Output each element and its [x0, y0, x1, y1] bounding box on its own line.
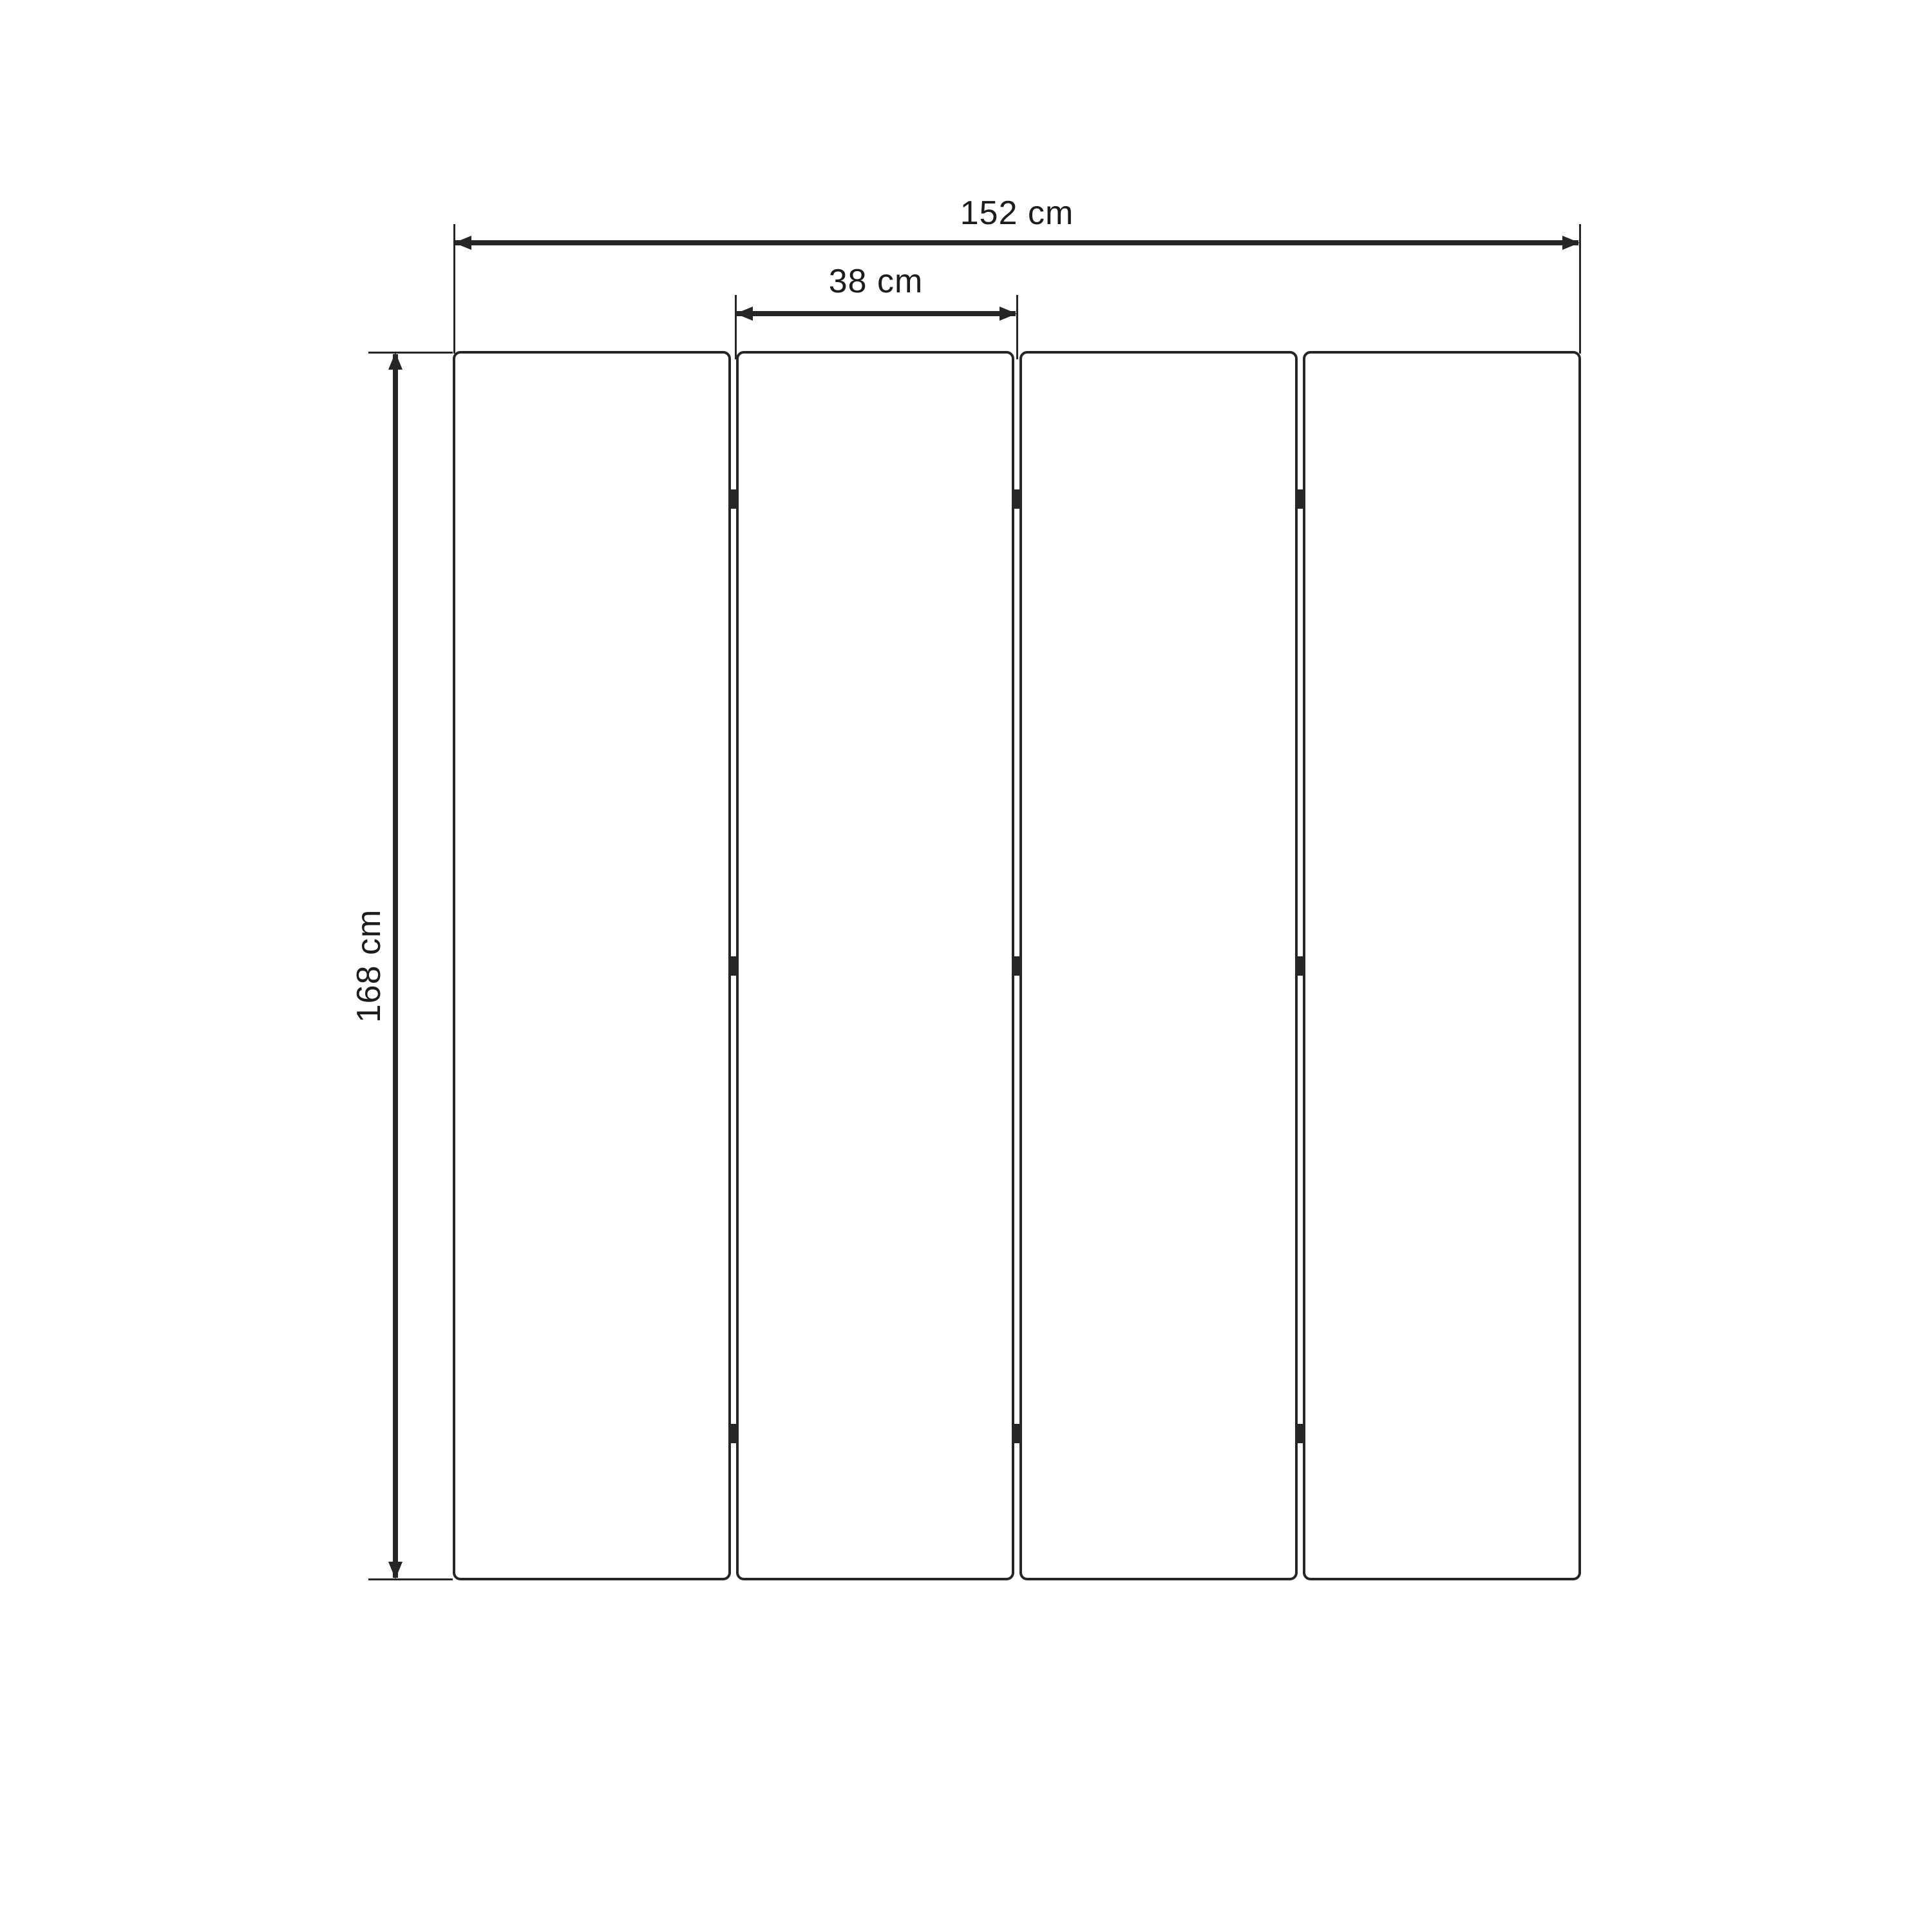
panel-3 [1019, 351, 1298, 1580]
arrowhead-up-icon [388, 352, 402, 370]
panel-4 [1303, 351, 1581, 1580]
hinge-mark-gap1-row3 [730, 1424, 737, 1443]
dimension-line [455, 240, 1578, 245]
height-label: 168 cm [352, 909, 386, 1023]
panel-2 [736, 351, 1014, 1580]
arrowhead-left-icon [735, 307, 753, 321]
hinge-mark-gap2-row1 [1013, 489, 1021, 509]
diagram-canvas: 152 cm 38 cm 168 cm [0, 0, 1932, 1932]
panel-width-label: 38 cm [829, 265, 923, 298]
extension-line-top [368, 352, 453, 354]
hinge-mark-gap3-row1 [1296, 489, 1304, 509]
arrowhead-right-icon [999, 307, 1017, 321]
panel-1 [453, 351, 731, 1580]
dimension-line [393, 354, 398, 1578]
arrowhead-down-icon [388, 1562, 402, 1579]
extension-line-bottom [368, 1578, 453, 1580]
hinge-mark-gap1-row2 [730, 956, 737, 976]
arrowhead-left-icon [454, 236, 471, 250]
hinge-mark-gap3-row3 [1296, 1424, 1304, 1443]
extension-line-right [1016, 295, 1018, 359]
hinge-mark-gap2-row3 [1013, 1424, 1021, 1443]
hinge-mark-gap3-row2 [1296, 956, 1304, 976]
hinge-mark-gap1-row1 [730, 489, 737, 509]
hinge-mark-gap2-row2 [1013, 956, 1021, 976]
total-width-label: 152 cm [960, 196, 1074, 230]
dimension-line [737, 311, 1016, 316]
extension-line-left [735, 295, 737, 359]
arrowhead-right-icon [1562, 236, 1580, 250]
